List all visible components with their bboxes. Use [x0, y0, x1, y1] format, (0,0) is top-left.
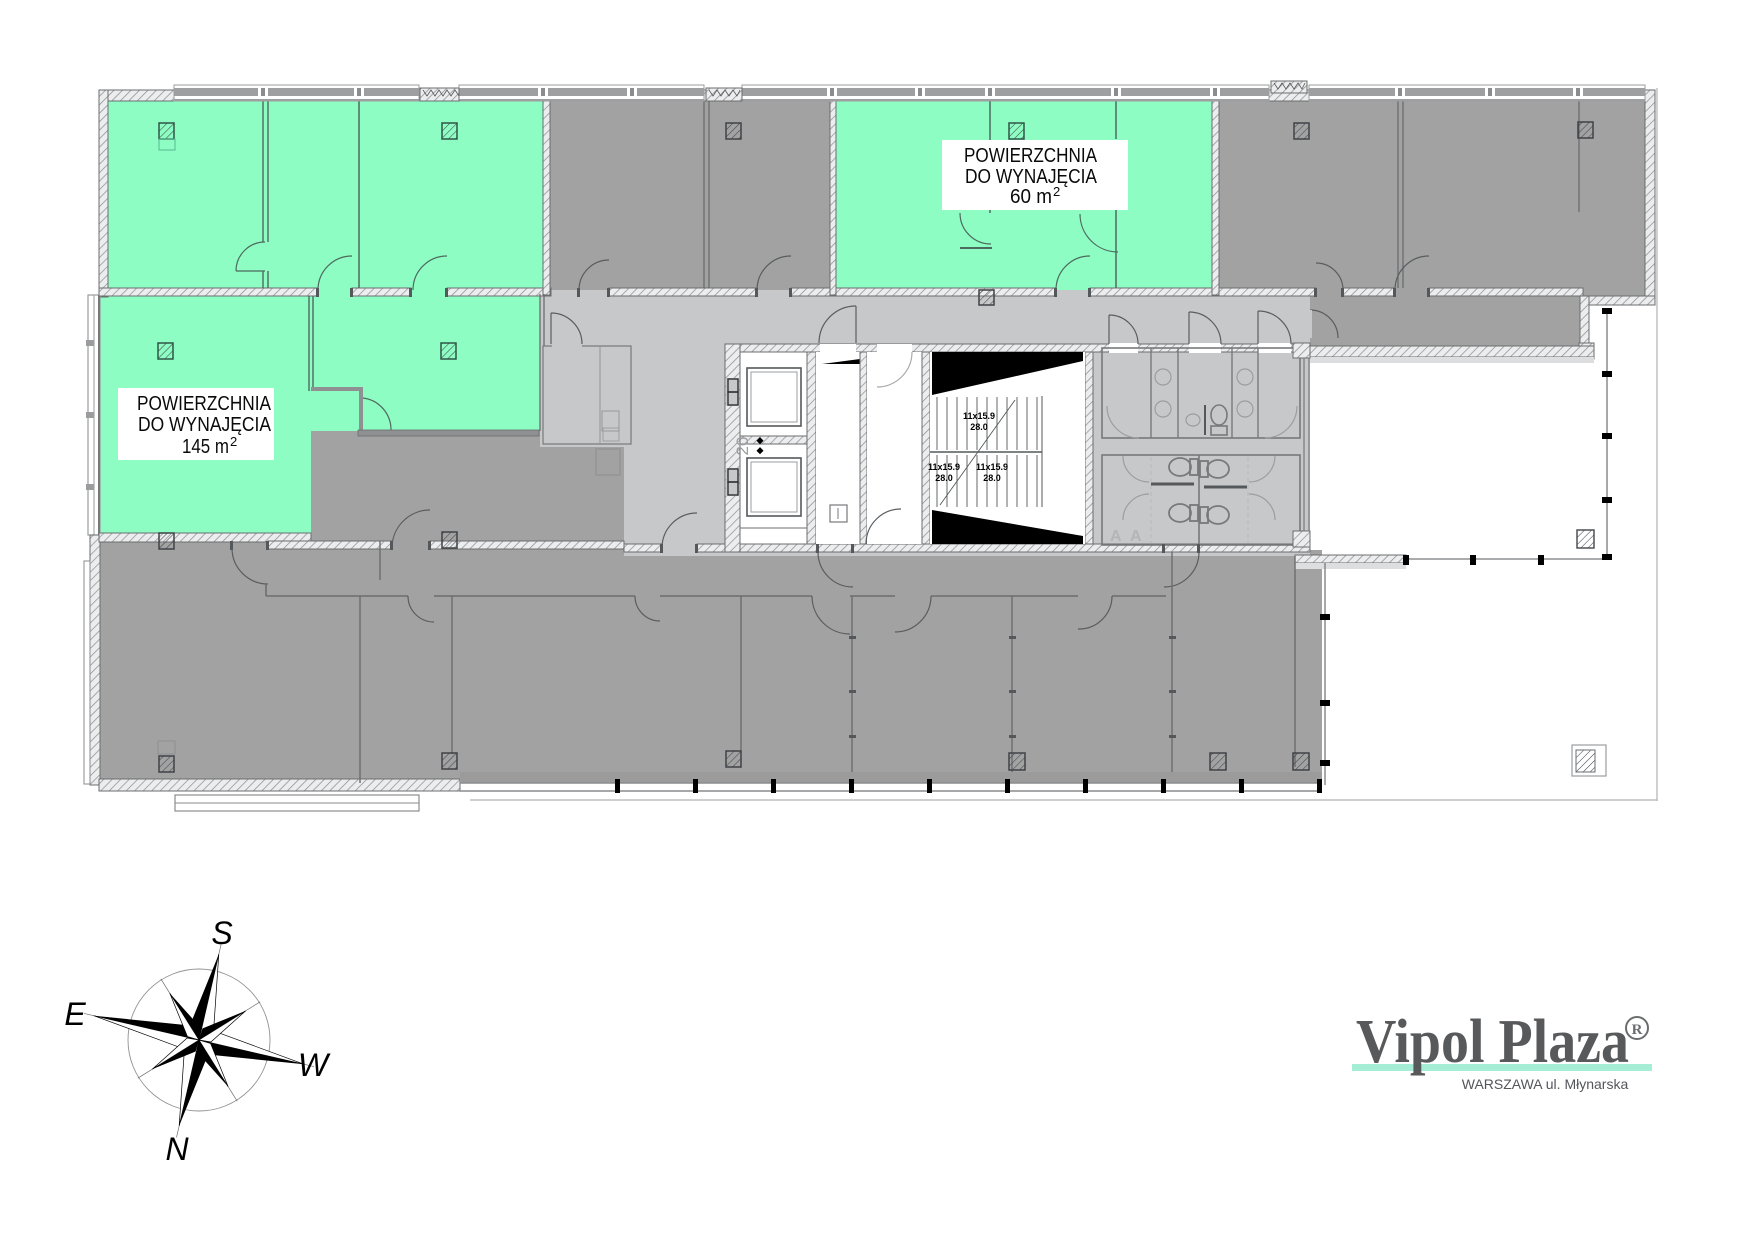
svg-text:WARSZAWA ul. Młynarska: WARSZAWA ul. Młynarska	[1462, 1076, 1629, 1092]
svg-text:11x15.9: 11x15.9	[963, 411, 995, 421]
svg-text:S: S	[211, 915, 232, 951]
svg-text:W: W	[298, 1047, 331, 1083]
svg-text:DO WYNAJĘCIA: DO WYNAJĘCIA	[138, 414, 272, 436]
svg-text:POWIERZCHNIA: POWIERZCHNIA	[137, 393, 272, 415]
svg-text:2: 2	[1053, 184, 1060, 199]
svg-text:DO WYNAJĘCIA: DO WYNAJĘCIA	[965, 166, 1098, 188]
svg-text:145 m: 145 m	[182, 436, 229, 458]
svg-text:28.0: 28.0	[970, 422, 988, 432]
svg-text:11x15.9: 11x15.9	[928, 462, 960, 472]
svg-text:A: A	[1130, 528, 1142, 545]
svg-text:R: R	[1632, 1022, 1643, 1038]
svg-text:28.0: 28.0	[983, 473, 1001, 483]
svg-text:Vipol Plaza: Vipol Plaza	[1356, 1008, 1629, 1076]
svg-text:60 m: 60 m	[1010, 186, 1052, 208]
svg-text:POWIERZCHNIA: POWIERZCHNIA	[964, 145, 1098, 167]
svg-text:20: 20	[733, 437, 752, 456]
svg-text:2: 2	[230, 434, 237, 449]
svg-text:E: E	[64, 996, 86, 1032]
svg-text:A: A	[1110, 528, 1122, 545]
svg-text:N: N	[165, 1131, 189, 1167]
svg-text:28.0: 28.0	[935, 473, 953, 483]
svg-text:11x15.9: 11x15.9	[976, 462, 1008, 472]
